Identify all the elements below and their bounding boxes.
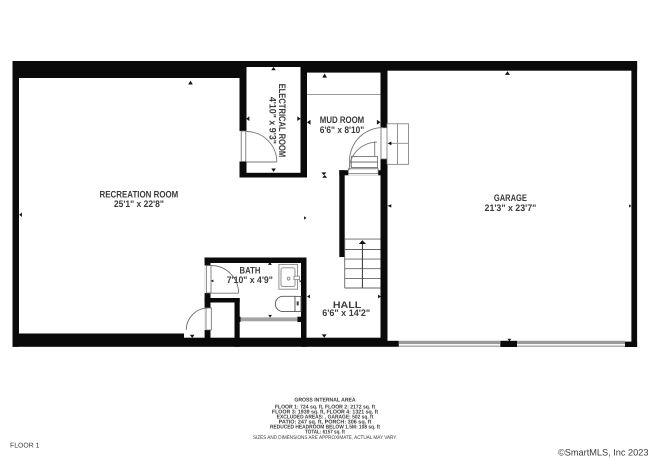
svg-text:25'1" x 22'8": 25'1" x 22'8": [114, 199, 164, 210]
svg-text:21'3" x 23'7": 21'3" x 23'7": [485, 203, 537, 214]
svg-text:4'10" x 9'3": 4'10" x 9'3": [266, 97, 277, 144]
svg-text:©SmartMLS, Inc 2023: ©SmartMLS, Inc 2023: [558, 447, 649, 457]
svg-text:7'10" x 4'9": 7'10" x 4'9": [227, 275, 273, 286]
svg-text:6'6" x 14'2": 6'6" x 14'2": [322, 308, 370, 319]
svg-text:SIZES AND DIMENSIONS ARE APPRO: SIZES AND DIMENSIONS ARE APPROXIMATE, AC…: [253, 435, 397, 441]
svg-text:6'6" x 8'10": 6'6" x 8'10": [320, 125, 365, 136]
svg-text:GROSS INTERNAL AREA: GROSS INTERNAL AREA: [294, 398, 355, 404]
svg-text:FLOOR 1: FLOOR 1: [10, 443, 40, 450]
